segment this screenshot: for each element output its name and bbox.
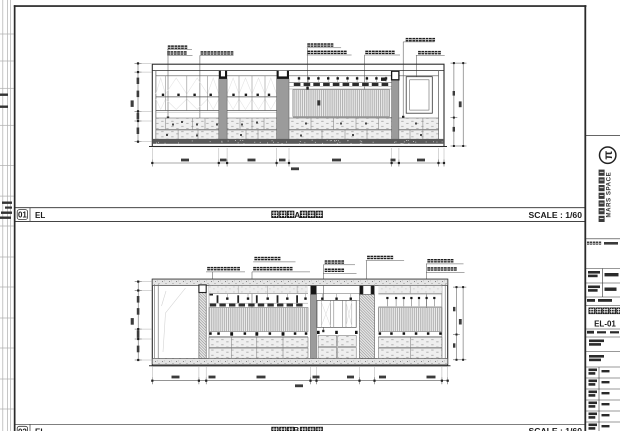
svg-text:02: 02 [18, 427, 27, 431]
svg-text:SCALE : 1/60: SCALE : 1/60 [529, 426, 583, 431]
svg-text:MARS SPACE: MARS SPACE [606, 172, 613, 218]
svg-text:EL-01: EL-01 [594, 320, 616, 329]
svg-text:SCALE : 1/60: SCALE : 1/60 [529, 210, 583, 220]
svg-text:π: π [603, 151, 615, 160]
svg-text:01: 01 [18, 211, 27, 220]
svg-text:EL: EL [35, 211, 45, 220]
svg-text:B: B [293, 425, 299, 431]
svg-text:A: A [294, 210, 300, 220]
svg-text:EL: EL [35, 428, 45, 432]
